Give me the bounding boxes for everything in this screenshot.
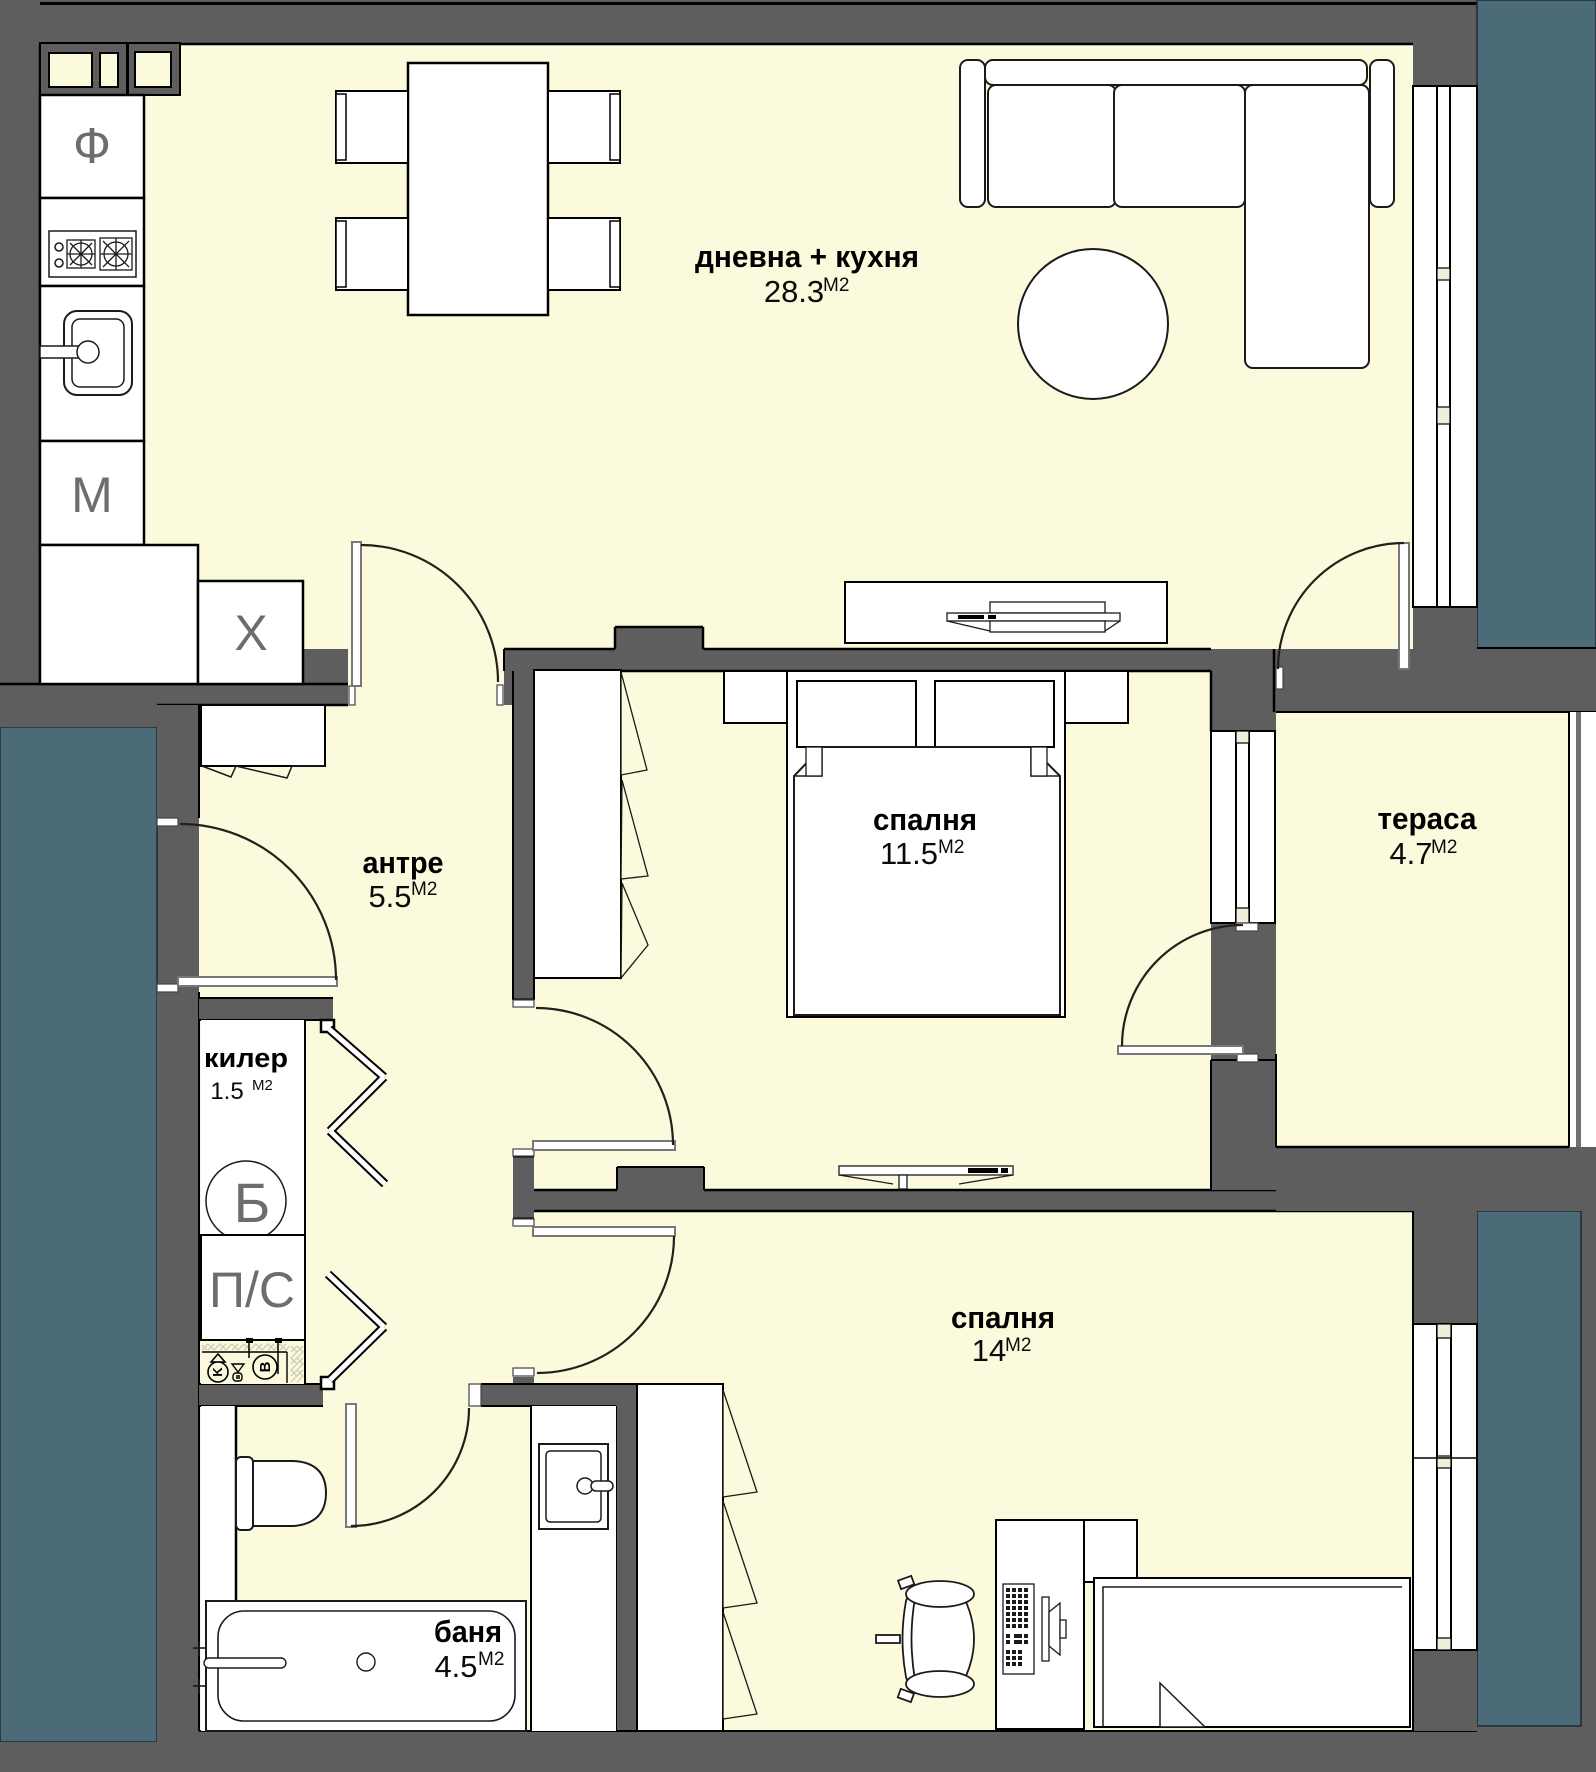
svg-text:4.5: 4.5: [434, 1649, 477, 1684]
svg-text:M2: M2: [478, 1649, 504, 1670]
svg-text:M2: M2: [938, 837, 964, 858]
svg-text:4.7: 4.7: [1389, 836, 1432, 871]
svg-text:28.3: 28.3: [764, 274, 824, 309]
svg-text:M2: M2: [823, 275, 849, 296]
svg-text:П/С: П/С: [209, 1262, 295, 1318]
svg-text:M: M: [71, 467, 113, 523]
svg-text:килер: килер: [204, 1043, 288, 1073]
svg-text:1.5: 1.5: [210, 1078, 243, 1105]
svg-text:тераса: тераса: [1378, 801, 1478, 836]
svg-text:M2: M2: [1005, 1335, 1031, 1356]
svg-text:X: X: [234, 605, 267, 661]
svg-text:K: K: [210, 1367, 225, 1377]
svg-text:антре: антре: [363, 845, 444, 880]
svg-text:спалня: спалня: [873, 802, 977, 837]
svg-text:11.5: 11.5: [880, 836, 938, 871]
svg-text:Б: Б: [234, 1171, 271, 1234]
svg-text:Ф: Ф: [73, 118, 111, 174]
svg-text:14: 14: [972, 1333, 1006, 1368]
svg-text:дневна + кухня: дневна + кухня: [695, 239, 919, 274]
svg-text:B: B: [257, 1361, 274, 1372]
svg-text:баня: баня: [434, 1614, 502, 1649]
svg-text:M2: M2: [411, 879, 437, 900]
svg-text:5.5: 5.5: [368, 879, 411, 914]
svg-text:M2: M2: [1431, 837, 1457, 858]
svg-text:M2: M2: [252, 1077, 273, 1094]
svg-text:спалня: спалня: [951, 1300, 1055, 1335]
